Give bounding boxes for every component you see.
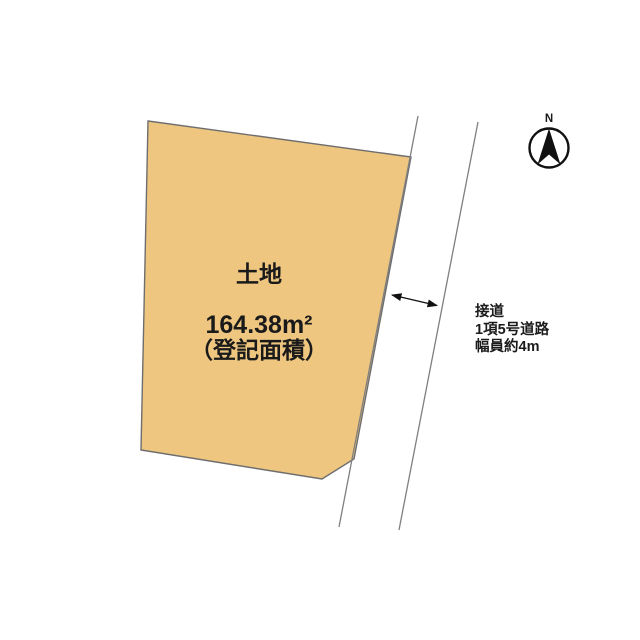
parcel-area-note: （登記面積） (139, 338, 379, 363)
parcel-label: 土地 (139, 261, 379, 288)
road-annotation: 接道 1項5号道路 幅員約4m (475, 304, 549, 357)
road-right-line (399, 122, 478, 530)
road-annotation-line-2: 1項5号道路 (475, 322, 549, 340)
compass-north-arrow (538, 129, 561, 165)
road-annotation-line-3: 幅員約4m (475, 339, 549, 357)
parcel-text-block: 土地 164.38m² （登記面積） (139, 261, 379, 363)
parcel-area-value: 164.38m² (139, 312, 379, 338)
site-plan: 土地 164.38m² （登記面積） 接道 1項5号道路 幅員約4m N (0, 0, 640, 640)
compass-icon (530, 129, 569, 168)
compass-north-label: N (534, 112, 564, 126)
road-width-arrow (392, 295, 437, 306)
road-width-arrow-line (392, 295, 437, 306)
road-annotation-line-1: 接道 (475, 304, 549, 322)
